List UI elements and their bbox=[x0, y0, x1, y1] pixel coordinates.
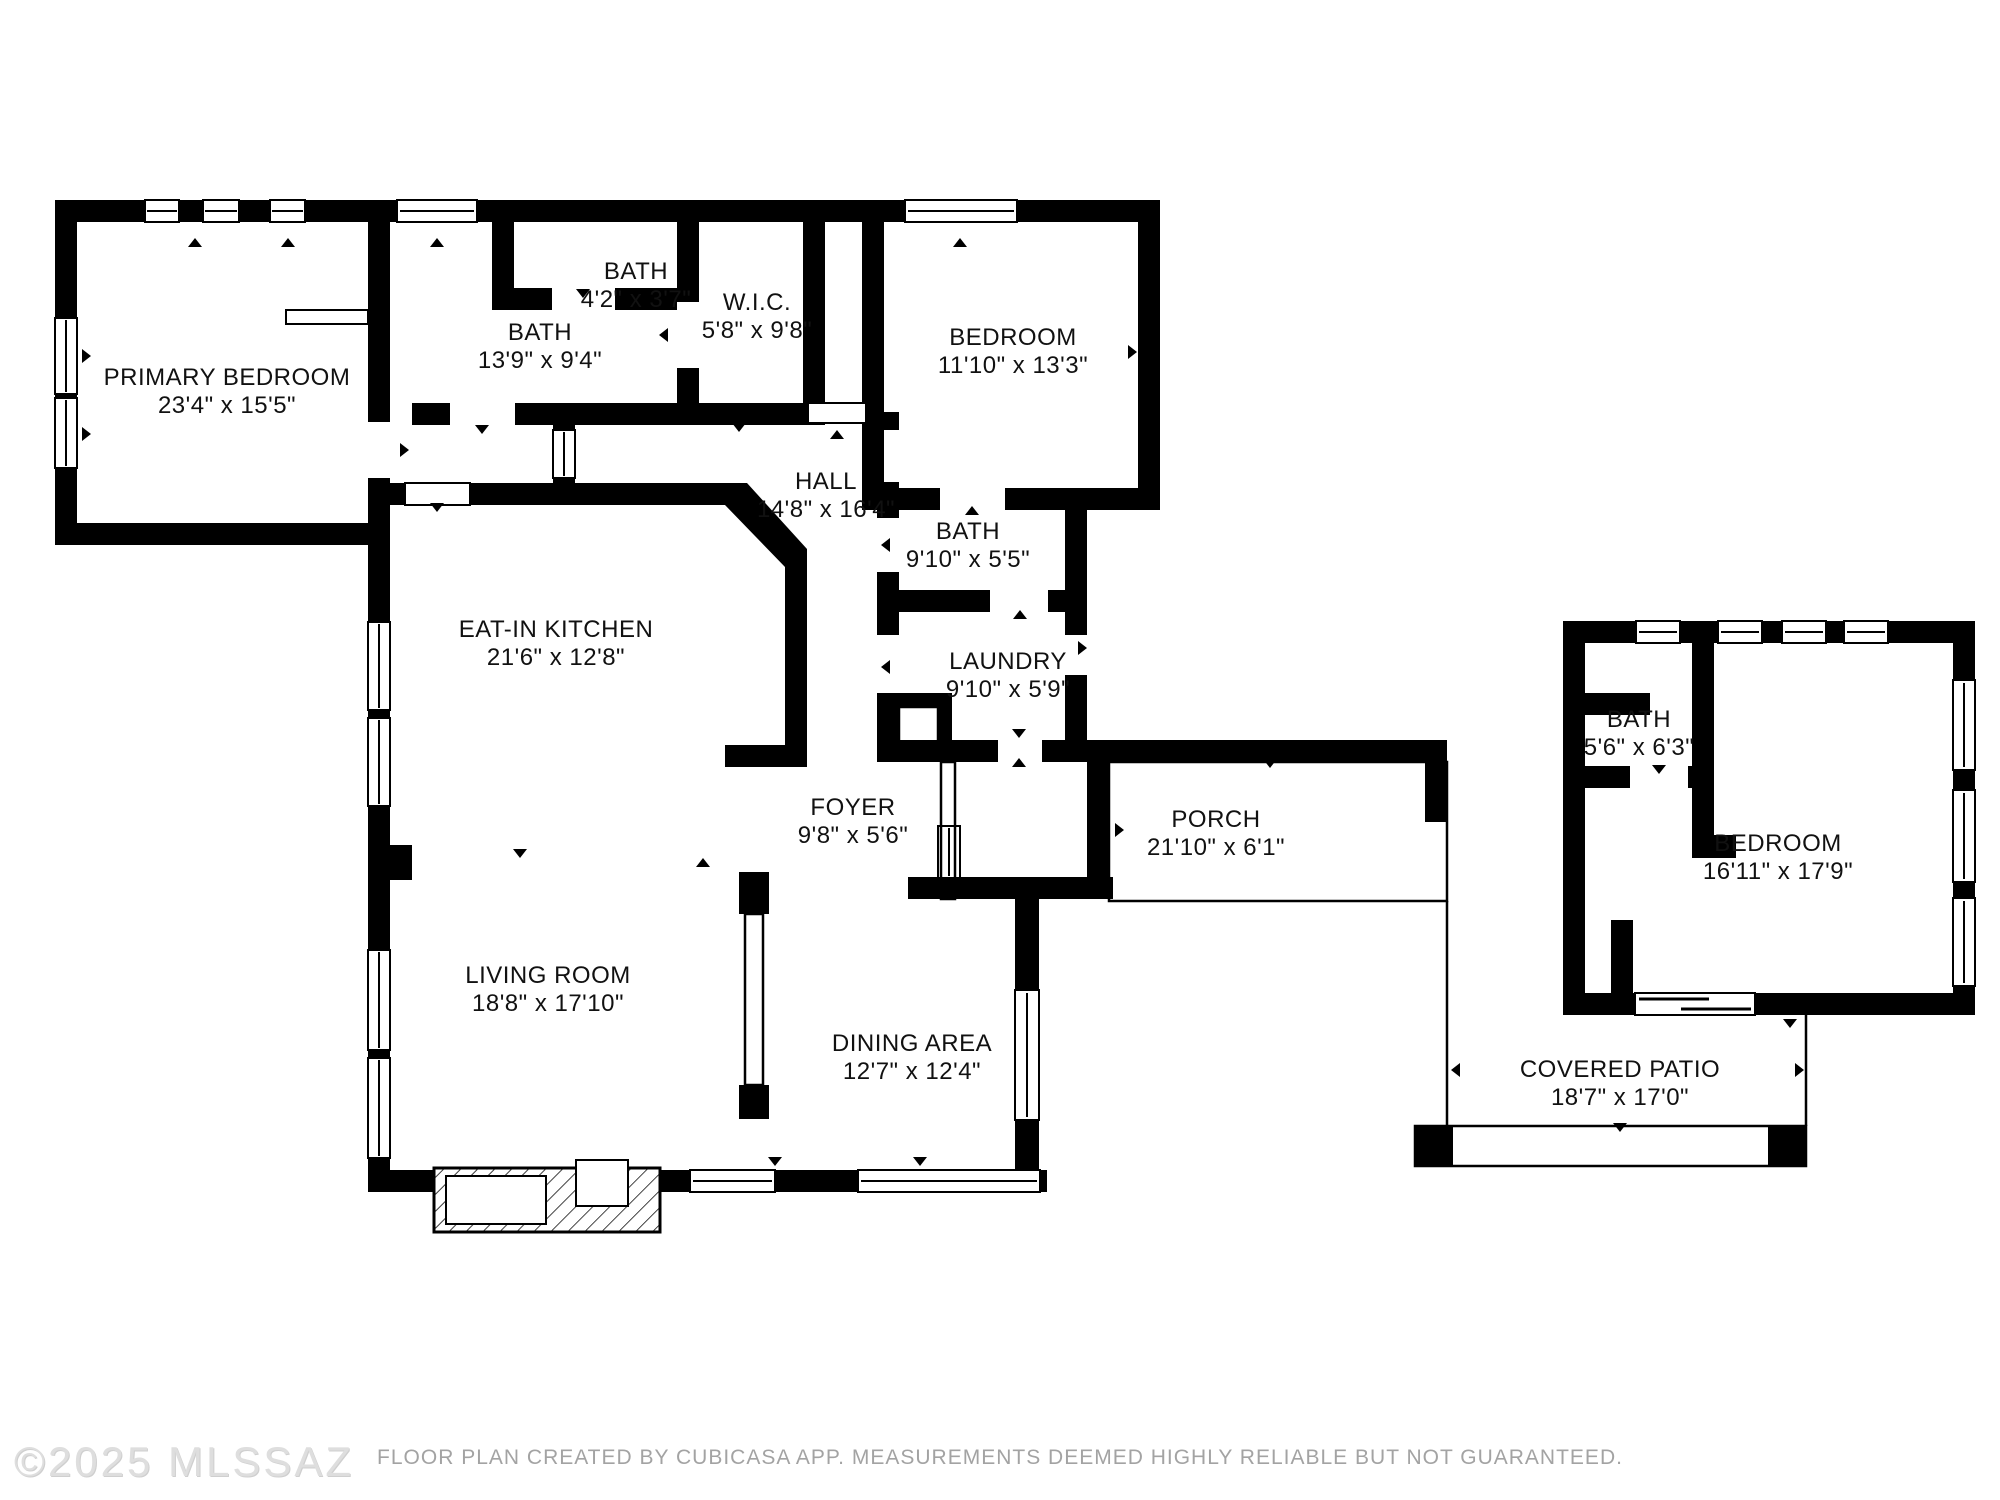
door-swing-icon bbox=[1795, 1063, 1804, 1077]
window-icon bbox=[368, 950, 390, 1050]
room-label-foyer: FOYER 9'8" x 5'6" bbox=[798, 794, 908, 850]
door-swing-icon bbox=[768, 1157, 782, 1166]
window-icon bbox=[858, 1170, 1040, 1192]
room-name: BEDROOM bbox=[938, 324, 1088, 352]
room-name: BATH bbox=[906, 518, 1030, 546]
door-swing-icon bbox=[732, 423, 746, 432]
room-name: DINING AREA bbox=[832, 1030, 992, 1058]
room-name: HALL bbox=[757, 468, 895, 496]
room-name: FOYER bbox=[798, 794, 908, 822]
room-name: PORCH bbox=[1147, 806, 1285, 834]
window-icon bbox=[1782, 621, 1826, 643]
room-dims: 21'10" x 6'1" bbox=[1147, 834, 1285, 862]
door-swing-icon bbox=[82, 427, 91, 441]
door-swing-icon bbox=[1613, 1123, 1627, 1132]
window-icon bbox=[270, 200, 305, 222]
room-name: PRIMARY BEDROOM bbox=[104, 364, 351, 392]
room-label-bath-small: BATH 4'2" x 3'7" bbox=[581, 258, 691, 314]
room-dims: 9'8" x 5'6" bbox=[798, 822, 908, 850]
footer-disclaimer: FLOOR PLAN CREATED BY CUBICASA APP. MEAS… bbox=[0, 1446, 2000, 1470]
door-swing-icon bbox=[696, 858, 710, 867]
door-swing-icon bbox=[400, 443, 409, 457]
door-swing-icon bbox=[913, 1157, 927, 1166]
room-label-bath-casita: BATH 5'6" x 6'3" bbox=[1584, 706, 1694, 762]
window-icon bbox=[145, 200, 179, 222]
room-dims: 16'11" x 17'9" bbox=[1703, 858, 1853, 886]
door-swing-icon bbox=[82, 349, 91, 363]
room-dims: 21'6" x 12'8" bbox=[459, 644, 654, 672]
door-swing-icon bbox=[965, 506, 979, 515]
room-dims: 18'8" x 17'10" bbox=[465, 990, 631, 1018]
door-swing-icon bbox=[281, 238, 295, 247]
window-icon bbox=[368, 622, 390, 710]
door-swing-icon bbox=[881, 538, 890, 552]
room-name: COVERED PATIO bbox=[1520, 1056, 1720, 1084]
pass-through-opening bbox=[405, 483, 470, 505]
room-label-covered-patio: COVERED PATIO 18'7" x 17'0" bbox=[1520, 1056, 1720, 1112]
door-swing-icon bbox=[1652, 765, 1666, 774]
room-dims: 11'10" x 13'3" bbox=[938, 352, 1088, 380]
door-swing-icon bbox=[1451, 1063, 1460, 1077]
room-name: LAUNDRY bbox=[946, 648, 1070, 676]
patio-roof-band bbox=[1415, 1126, 1806, 1166]
room-label-porch: PORCH 21'10" x 6'1" bbox=[1147, 806, 1285, 862]
room-name: EAT-IN KITCHEN bbox=[459, 616, 654, 644]
room-dims: 13'9" x 9'4" bbox=[478, 347, 602, 375]
door-swing-icon bbox=[1012, 758, 1026, 767]
closet-opening bbox=[808, 403, 866, 423]
door-swing-icon bbox=[513, 849, 527, 858]
closet-shelf bbox=[286, 310, 368, 324]
door-swing-icon bbox=[1115, 823, 1124, 837]
floor-plan-page: PRIMARY BEDROOM 23'4" x 15'5" BATH 13'9"… bbox=[0, 0, 2000, 1500]
door-swing-icon bbox=[1783, 1019, 1797, 1028]
door-swing-icon bbox=[1078, 641, 1087, 655]
door-swing-icon bbox=[430, 238, 444, 247]
room-label-eat-in-kitchen: EAT-IN KITCHEN 21'6" x 12'8" bbox=[459, 616, 654, 672]
door-swing-icon bbox=[881, 660, 890, 674]
room-dims: 18'7" x 17'0" bbox=[1520, 1084, 1720, 1112]
door-swing-icon bbox=[1128, 345, 1137, 359]
room-label-laundry: LAUNDRY 9'10" x 5'9" bbox=[946, 648, 1070, 704]
room-dims: 5'8" x 9'8" bbox=[702, 317, 812, 345]
sliding-door-icon bbox=[1635, 993, 1755, 1015]
room-name: BATH bbox=[1584, 706, 1694, 734]
window-icon bbox=[1844, 621, 1888, 643]
room-label-dining-area: DINING AREA 12'7" x 12'4" bbox=[832, 1030, 992, 1086]
room-dims: 4'2" x 3'7" bbox=[581, 286, 691, 314]
living-dining-opening bbox=[745, 914, 763, 1085]
window-icon bbox=[1636, 621, 1680, 643]
room-dims: 12'7" x 12'4" bbox=[832, 1058, 992, 1086]
floor-plan-drawing bbox=[0, 0, 2000, 1500]
room-dims: 23'4" x 15'5" bbox=[104, 392, 351, 420]
room-label-hall: HALL 14'8" x 16'4" bbox=[757, 468, 895, 524]
window-icon bbox=[55, 398, 77, 468]
room-label-bedroom-2: BEDROOM 11'10" x 13'3" bbox=[938, 324, 1088, 380]
room-name: BATH bbox=[581, 258, 691, 286]
room-label-living-room: LIVING ROOM 18'8" x 17'10" bbox=[465, 962, 631, 1018]
room-label-primary-bedroom: PRIMARY BEDROOM 23'4" x 15'5" bbox=[104, 364, 351, 420]
room-label-bedroom-casita: BEDROOM 16'11" x 17'9" bbox=[1703, 830, 1853, 886]
room-dims: 9'10" x 5'9" bbox=[946, 676, 1070, 704]
window-icon bbox=[397, 200, 477, 222]
door-swing-icon bbox=[1012, 729, 1026, 738]
window-icon bbox=[368, 718, 390, 806]
room-label-bath-hall: BATH 9'10" x 5'5" bbox=[906, 518, 1030, 574]
room-label-wic: W.I.C. 5'8" x 9'8" bbox=[702, 289, 812, 345]
window-icon bbox=[690, 1170, 775, 1192]
window-icon bbox=[905, 200, 1017, 222]
room-name: LIVING ROOM bbox=[465, 962, 631, 990]
door-swing-icon bbox=[430, 503, 444, 512]
door-swing-icon bbox=[475, 425, 489, 434]
window-icon bbox=[203, 200, 239, 222]
door-swing-icon bbox=[1263, 759, 1277, 768]
window-icon bbox=[1953, 680, 1975, 770]
window-icon bbox=[55, 318, 77, 394]
window-icon bbox=[553, 430, 575, 478]
window-icon bbox=[1953, 790, 1975, 882]
window-icon bbox=[1953, 898, 1975, 986]
door-swing-icon bbox=[953, 238, 967, 247]
room-dims: 14'8" x 16'4" bbox=[757, 496, 895, 524]
door-swing-icon bbox=[659, 328, 668, 342]
door-swing-icon bbox=[1013, 610, 1027, 619]
window-icon bbox=[368, 1058, 390, 1158]
room-name: BATH bbox=[478, 319, 602, 347]
door-swing-icon bbox=[188, 238, 202, 247]
door-swing-icon bbox=[830, 430, 844, 439]
room-dims: 5'6" x 6'3" bbox=[1584, 734, 1694, 762]
room-dims: 9'10" x 5'5" bbox=[906, 546, 1030, 574]
fireplace-icon bbox=[434, 1160, 660, 1232]
window-icon bbox=[1718, 621, 1762, 643]
room-name: BEDROOM bbox=[1703, 830, 1853, 858]
room-name: W.I.C. bbox=[702, 289, 812, 317]
window-icon bbox=[1015, 990, 1039, 1120]
room-label-bath-upper: BATH 13'9" x 9'4" bbox=[478, 319, 602, 375]
laundry-closet bbox=[899, 707, 938, 742]
